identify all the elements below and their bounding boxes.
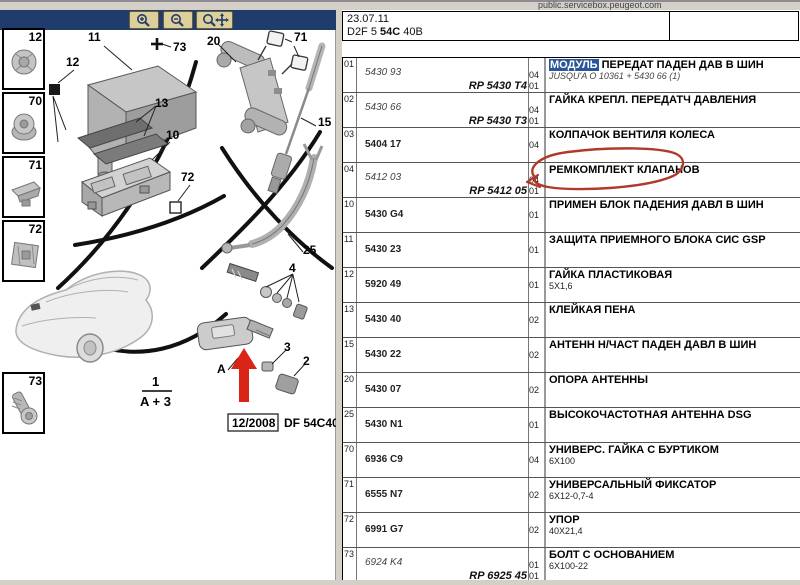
diagram-callout-15: 15 (318, 116, 331, 128)
description-label: УПОР (549, 514, 800, 526)
row-description-cell: КЛЕЙКАЯ ПЕНА (544, 303, 800, 337)
diagram-canvas: 1 A + 3 12/2008 DF 54C40B (0, 30, 336, 580)
qty-value-rp: 01 (529, 116, 544, 127)
description-sub: 6X100-22 (549, 561, 800, 571)
catalog-header-box: 23.07.11 D2F 5 54C 40B (342, 11, 799, 41)
diagram-callout-71: 71 (294, 31, 307, 43)
qty-value-rp: 01 (529, 186, 544, 197)
table-row[interactable]: 716555 N702УНИВЕРСАЛЬНЫЙ ФИКСАТОР6X12-0,… (343, 478, 800, 513)
row-qty-cell: 01 (528, 198, 544, 232)
description-label: ГАЙКА КРЕПЛ. ПЕРЕДАТЧ ДАВЛЕНИЯ (549, 94, 800, 106)
ecu-clip-part (170, 202, 181, 213)
row-qty-cell: 01 (528, 408, 544, 442)
part-thumb-gear-icon (8, 44, 42, 84)
part-reference: 5920 49 (357, 268, 528, 290)
valve-cap-part (275, 373, 299, 394)
part-reference-rp: RP 5412 05 (357, 185, 528, 197)
description-label: ОПОРА АНТЕННЫ (549, 374, 800, 386)
row-item-number: 10 (343, 198, 356, 232)
row-reference-cell: 5430 66RP 5430 T3 (356, 93, 528, 127)
part-reference-rp: RP 5430 T3 (357, 115, 528, 127)
row-item-number: 13 (343, 303, 356, 337)
qty-value: 04 (529, 163, 544, 185)
cover-screw-part (151, 38, 163, 50)
qty-value: 02 (529, 513, 544, 535)
red-arrow-annotation (231, 348, 257, 402)
row-reference-cell: 5430 N1 (356, 408, 528, 442)
description-sub: JUSQU'A O 10361 + 5430 66 (1) (549, 71, 800, 81)
qty-value: 02 (529, 373, 544, 395)
valve-nut-part (262, 362, 273, 371)
part-reference: 5430 23 (357, 233, 528, 255)
row-reference-cell: 5404 17 (356, 128, 528, 162)
part-reference: 5430 93 (357, 58, 528, 78)
row-reference-cell: 6555 N7 (356, 478, 528, 512)
part-reference: 6936 C9 (357, 443, 528, 465)
part-reference: 6991 G7 (357, 513, 528, 535)
diagram-callout-73: 73 (173, 41, 186, 53)
ratio-note: 1 A + 3 (140, 374, 172, 409)
diagram-callout-4: 4 (289, 262, 296, 274)
zoom-in-button[interactable] (129, 11, 159, 29)
part-reference: 5430 66 (357, 93, 528, 113)
ecu-part (82, 158, 170, 216)
row-item-number: 71 (343, 478, 356, 512)
description-label: ПРИМЕН БЛОК ПАДЕНИЯ ДАВЛ В ШИН (549, 199, 800, 211)
exploded-diagram-svg: 1 A + 3 12/2008 DF 54C40B (0, 30, 336, 580)
parts-table: 015430 93RP 5430 T40401МОДУЛЬ ПЕРЕДАТ ПА… (342, 57, 800, 580)
part-thumbnail-label: 72 (29, 222, 42, 236)
row-qty-cell: 0401 (528, 93, 544, 127)
row-reference-cell: 5920 49 (356, 268, 528, 302)
part-thumbnail-label: 12 (29, 30, 42, 44)
car-silhouette (16, 271, 152, 362)
catalog-date: 23.07.11 (347, 13, 389, 25)
tpms-sensor-part (196, 316, 273, 350)
row-item-number: 02 (343, 93, 356, 127)
description-sub: 6X100 (549, 456, 800, 466)
part-reference: 5430 40 (357, 303, 528, 325)
table-row[interactable]: 115430 2301ЗАЩИТА ПРИЕМНОГО БЛОКА СИС GS… (343, 233, 800, 268)
row-description-cell: РЕМКОМПЛЕКТ КЛАПАНОВ (544, 163, 800, 197)
row-qty-cell: 02 (528, 303, 544, 337)
qty-value: 01 (529, 233, 544, 255)
description-label: ЗАЩИТА ПРИЕМНОГО БЛОКА СИС GSP (549, 234, 800, 246)
qty-value: 01 (529, 408, 544, 430)
date-box-label: 12/2008 (232, 416, 276, 430)
qty-value: 02 (529, 338, 544, 360)
description-label: АНТЕНН Н/ЧАСТ ПАДЕН ДАВЛ В ШИН (549, 339, 800, 351)
table-row[interactable]: 125920 4901ГАЙКА ПЛАСТИКОВАЯ5X1,6 (343, 268, 800, 303)
row-item-number: 70 (343, 443, 356, 477)
header-divider (669, 12, 670, 40)
table-row[interactable]: 736924 K4RP 6925 450101БОЛТ С ОСНОВАНИЕМ… (343, 548, 800, 580)
diagram-callout-11: 11 (88, 31, 101, 43)
qty-value: 01 (529, 548, 544, 570)
description-sub: 5X1,6 (549, 281, 800, 291)
zoom-out-button[interactable] (163, 11, 193, 29)
row-description-cell: БОЛТ С ОСНОВАНИЕМ6X100-22 (544, 548, 800, 580)
part-thumbnail-70[interactable]: 70 (2, 92, 45, 154)
diagram-callout-13: 13 (155, 97, 168, 109)
catalog-code-suffix: 40B (403, 26, 423, 38)
table-row[interactable]: 205430 0702ОПОРА АНТЕННЫ (343, 373, 800, 408)
part-thumbnail-label: 70 (29, 94, 42, 108)
row-qty-cell: 0401 (528, 163, 544, 197)
row-qty-cell: 02 (528, 373, 544, 407)
row-item-number: 03 (343, 128, 356, 162)
row-description-cell: ГАЙКА ПЛАСТИКОВАЯ5X1,6 (544, 268, 800, 302)
part-thumb-plate-icon (8, 236, 42, 276)
row-reference-cell: 6936 C9 (356, 443, 528, 477)
table-row[interactable]: 706936 C904УНИВЕРС. ГАЙКА С БУРТИКОМ6X10… (343, 443, 800, 478)
zoom-out-icon (167, 13, 189, 28)
part-reference: 6555 N7 (357, 478, 528, 500)
row-item-number: 12 (343, 268, 356, 302)
table-row[interactable]: 255430 N101ВЫСОКОЧАСТОТНАЯ АНТЕННА DSG (343, 408, 800, 443)
ratio-numerator: 1 (152, 374, 159, 389)
row-description-cell: УПОР40X21,4 (544, 513, 800, 547)
part-reference: 5412 03 (357, 163, 528, 183)
qty-value: 04 (529, 93, 544, 115)
part-reference: 6924 K4 (357, 548, 528, 568)
row-qty-cell: 04 (528, 128, 544, 162)
row-qty-cell: 02 (528, 338, 544, 372)
row-item-number: 01 (343, 58, 356, 92)
part-thumb-clip-icon (8, 172, 42, 212)
diagram-toolbar (0, 10, 336, 30)
part-reference: 5430 G4 (357, 198, 528, 220)
diagram-callout-10: 10 (166, 129, 179, 141)
row-reference-cell: 5430 22 (356, 338, 528, 372)
part-thumbnail-71[interactable]: 71 (2, 156, 45, 218)
row-description-cell: ЗАЩИТА ПРИЕМНОГО БЛОКА СИС GSP (544, 233, 800, 267)
diagram-callout-12: 12 (66, 56, 79, 68)
part-thumbnail-12[interactable]: 12 (2, 28, 45, 90)
description-label: УНИВЕРС. ГАЙКА С БУРТИКОМ (549, 444, 800, 456)
row-description-cell: УНИВЕРС. ГАЙКА С БУРТИКОМ6X100 (544, 443, 800, 477)
part-reference: 5404 17 (357, 128, 528, 150)
row-description-cell: ОПОРА АНТЕННЫ (544, 373, 800, 407)
diagram-panel: 1 A + 3 12/2008 DF 54C40B 12 70 71 (0, 10, 336, 580)
row-description-cell: ГАЙКА КРЕПЛ. ПЕРЕДАТЧ ДАВЛЕНИЯ (544, 93, 800, 127)
description-sub: 6X12-0,7-4 (549, 491, 800, 501)
square-fastener-part (49, 84, 60, 95)
row-description-cell: ПРИМЕН БЛОК ПАДЕНИЯ ДАВЛ В ШИН (544, 198, 800, 232)
row-reference-cell: 5412 03RP 5412 05 (356, 163, 528, 197)
row-qty-cell: 02 (528, 513, 544, 547)
catalog-code-main: 54C (380, 26, 400, 38)
description-label: КОЛПАЧОК ВЕНТИЛЯ КОЛЕСА (549, 129, 800, 141)
catalog-code: D2F 5 54C 40B (347, 26, 423, 38)
qty-value: 04 (529, 58, 544, 80)
row-reference-cell: 6991 G7 (356, 513, 528, 547)
table-row[interactable]: 726991 G702УПОР40X21,4 (343, 513, 800, 548)
catalog-code-prefix: D2F 5 (347, 26, 377, 38)
row-item-number: 04 (343, 163, 356, 197)
zoom-pan-button[interactable] (196, 11, 233, 29)
part-reference: 5430 N1 (357, 408, 528, 430)
table-row[interactable]: 015430 93RP 5430 T40401МОДУЛЬ ПЕРЕДАТ ПА… (343, 58, 800, 93)
row-reference-cell: 5430 93RP 5430 T4 (356, 58, 528, 92)
row-qty-cell: 0101 (528, 548, 544, 580)
selected-word-highlight: МОДУЛЬ (549, 59, 599, 71)
qty-value: 01 (529, 268, 544, 290)
row-item-number: 72 (343, 513, 356, 547)
site-url-label: public.servicebox.peugeot.com (538, 0, 800, 10)
row-description-cell: ВЫСОКОЧАСТОТНАЯ АНТЕННА DSG (544, 408, 800, 442)
description-label: УНИВЕРСАЛЬНЫЙ ФИКСАТОР (549, 479, 800, 491)
qty-value-rp: 01 (529, 81, 544, 92)
qty-value: 04 (529, 443, 544, 465)
row-qty-cell: 04 (528, 443, 544, 477)
row-qty-cell: 01 (528, 268, 544, 302)
qty-value-rp: 01 (529, 571, 544, 580)
part-thumb-bolt-icon (8, 388, 42, 428)
description-label: ГАЙКА ПЛАСТИКОВАЯ (549, 269, 800, 281)
row-item-number: 25 (343, 408, 356, 442)
row-description-cell: МОДУЛЬ ПЕРЕДАТ ПАДЕН ДАВ В ШИНJUSQU'A O … (544, 58, 800, 92)
zoom-pan-icon (200, 13, 230, 28)
part-thumbnail-label: 71 (29, 158, 42, 172)
description-label: ВЫСОКОЧАСТОТНАЯ АНТЕННА DSG (549, 409, 800, 421)
qty-value: 02 (529, 303, 544, 325)
part-thumb-nut-icon (8, 108, 42, 148)
row-qty-cell: 0401 (528, 58, 544, 92)
description-label: МОДУЛЬ ПЕРЕДАТ ПАДЕН ДАВ В ШИН (549, 59, 800, 71)
description-label: БОЛТ С ОСНОВАНИЕМ (549, 549, 800, 561)
diagram-callout-3: 3 (284, 341, 291, 353)
parts-list-panel: 23.07.11 D2F 5 54C 40B 015430 93RP 5430 … (342, 10, 800, 580)
row-reference-cell: 5430 23 (356, 233, 528, 267)
diagram-callout-20: 20 (207, 35, 220, 47)
table-row[interactable]: 105430 G401ПРИМЕН БЛОК ПАДЕНИЯ ДАВЛ В ШИ… (343, 198, 800, 233)
row-description-cell: КОЛПАЧОК ВЕНТИЛЯ КОЛЕСА (544, 128, 800, 162)
description-sub: 40X21,4 (549, 526, 800, 536)
row-qty-cell: 02 (528, 478, 544, 512)
row-qty-cell: 01 (528, 233, 544, 267)
row-item-number: 15 (343, 338, 356, 372)
row-item-number: 73 (343, 548, 356, 580)
diagram-callout-2: 2 (303, 355, 310, 367)
qty-value: 02 (529, 478, 544, 500)
zoom-in-icon (133, 13, 155, 28)
part-thumbnail-73[interactable]: 73 (2, 372, 45, 434)
row-item-number: 20 (343, 373, 356, 407)
part-reference: 5430 07 (357, 373, 528, 395)
row-item-number: 11 (343, 233, 356, 267)
description-label: КЛЕЙКАЯ ПЕНА (549, 304, 800, 316)
row-reference-cell: 5430 G4 (356, 198, 528, 232)
qty-value: 01 (529, 198, 544, 220)
table-row[interactable]: 035404 1704КОЛПАЧОК ВЕНТИЛЯ КОЛЕСА (343, 128, 800, 163)
row-reference-cell: 6924 K4RP 6925 45 (356, 548, 528, 580)
part-thumbnail-72[interactable]: 72 (2, 220, 45, 282)
part-thumbnail-label: 73 (29, 374, 42, 388)
diagram-callout-72: 72 (181, 171, 194, 183)
row-reference-cell: 5430 40 (356, 303, 528, 337)
row-description-cell: УНИВЕРСАЛЬНЫЙ ФИКСАТОР6X12-0,7-4 (544, 478, 800, 512)
description-label: РЕМКОМПЛЕКТ КЛАПАНОВ (549, 164, 800, 176)
qty-value: 04 (529, 128, 544, 150)
ratio-denominator: A + 3 (140, 394, 171, 409)
table-row[interactable]: 025430 66RP 5430 T30401ГАЙКА КРЕПЛ. ПЕРЕ… (343, 93, 800, 128)
row-reference-cell: 5430 07 (356, 373, 528, 407)
table-row[interactable]: 045412 03RP 5412 050401РЕМКОМПЛЕКТ КЛАПА… (343, 163, 800, 198)
row-description-cell: АНТЕНН Н/ЧАСТ ПАДЕН ДАВЛ В ШИН (544, 338, 800, 372)
table-row[interactable]: 155430 2202АНТЕНН Н/ЧАСТ ПАДЕН ДАВЛ В ШИ… (343, 338, 800, 373)
table-row[interactable]: 135430 4002КЛЕЙКАЯ ПЕНА (343, 303, 800, 338)
part-reference: 5430 22 (357, 338, 528, 360)
diagram-callout-25: 25 (303, 244, 316, 256)
part-reference-rp: RP 6925 45 (357, 570, 528, 580)
plate-code-label: DF 54C40B (284, 416, 336, 430)
part-reference-rp: RP 5430 T4 (357, 80, 528, 92)
diagram-callout-a: A (217, 363, 226, 375)
